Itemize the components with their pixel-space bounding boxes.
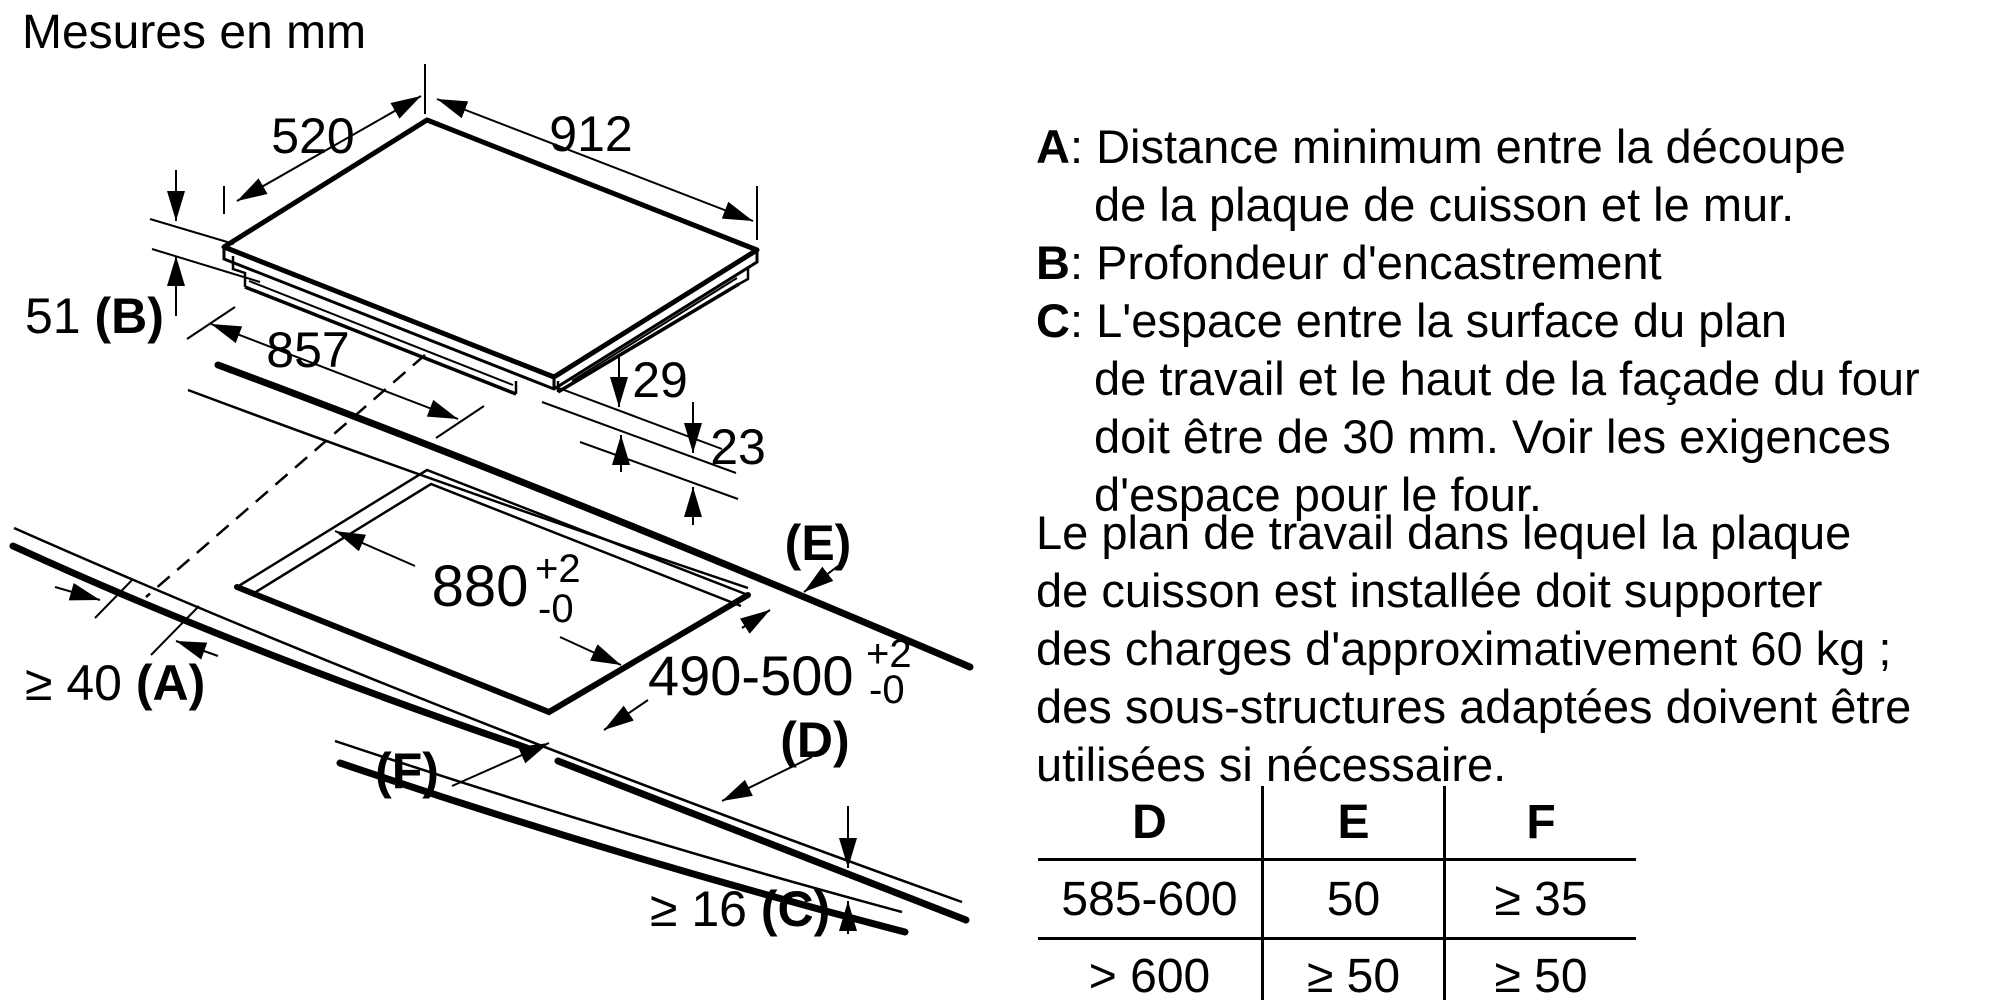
legend-text-a1: Distance minimum entre la découpe [1096,120,1846,173]
paragraph-line: des sous-structures adaptées doivent êtr… [1036,678,1911,736]
dim-490-tol-minus: -0 [869,668,905,712]
legend-letter-c: C [1036,294,1070,347]
clearance-table: D E F 585-600 50 ≥ 35 > 600 ≥ 50 ≥ 50 [1038,786,1636,1000]
dim-857-label: 857 [266,322,349,378]
table-row: > 600 ≥ 50 ≥ 50 [1038,939,1636,1000]
dim-490-label: 490-500 [648,644,854,707]
table-cell: 585-600 [1038,860,1263,939]
label-f: (F) [375,743,439,799]
dim-880-tol-plus: +2 [535,547,581,591]
legend-letter-b: B [1036,236,1070,289]
ext-line-b-upper [150,219,234,244]
dim-490-line-right [742,610,770,628]
dim-a-arrow-left [55,587,100,600]
dim-880-tol-minus: -0 [538,587,574,631]
tick-857-right [436,406,484,438]
spec-paragraph: Le plan de travail dans lequel la plaque… [1036,504,1911,794]
paragraph-line: des charges d'approximativement 60 kg ; [1036,620,1911,678]
dim-29-label: 29 [632,352,688,408]
dim-23-label: 23 [710,419,766,475]
label-e: (E) [785,515,852,571]
table-header-f: F [1445,786,1637,860]
arrow-f [452,743,549,786]
legend-text-c1: L'espace entre la surface du plan [1096,294,1787,347]
dim-520-label: 520 [271,108,354,164]
legend-text-c2: de travail et le haut de la façade du fo… [1036,350,1920,408]
burner-box-step-left [233,256,245,287]
table-header-e: E [1263,786,1445,860]
table-cell: > 600 [1038,939,1263,1000]
dim-a-arrow-right [176,641,218,656]
table-cell: ≥ 50 [1445,939,1637,1000]
dim-880-label: 880 [432,554,529,619]
legend-letter-a: A [1036,120,1070,173]
page-title: Mesures en mm [22,6,366,59]
tick-857-left [187,307,235,339]
paragraph-line: Le plan de travail dans lequel la plaque [1036,504,1911,562]
table-cell: ≥ 50 [1263,939,1445,1000]
page: Mesures en mm [0,0,2000,1000]
table-cell: 50 [1263,860,1445,939]
legend-text-b1: Profondeur d'encastrement [1096,236,1661,289]
table-row: 585-600 50 ≥ 35 [1038,860,1636,939]
dimension-lines [55,96,848,934]
legend-row-b: B: Profondeur d'encastrement [1036,234,1920,292]
dim-912-label: 912 [549,106,632,162]
table-header-d: D [1038,786,1263,860]
legend-text-a2: de la plaque de cuisson et le mur. [1036,176,1920,234]
legend-text-c3: doit être de 30 mm. Voir les exigences [1036,408,1920,466]
dim-a-label: ≥ 40 (A) [25,655,205,711]
dim-880-line-right [560,637,621,665]
legend-sep-c: : [1070,294,1096,347]
legend-sep-b: : [1070,236,1096,289]
legend-sep-a: : [1070,120,1096,173]
legend-row-c: C: L'espace entre la surface du plan [1036,292,1920,350]
legend: A: Distance minimum entre la découpe de … [1036,118,1920,524]
label-d: (D) [780,712,849,768]
dimension-labels: 520 912 857 51 (B) 29 23 880 +2 -0 490-5… [25,106,912,937]
dim-c-label: ≥ 16 (C) [650,881,830,937]
dim-b-label: 51 (B) [25,288,164,344]
table-cell: ≥ 35 [1445,860,1637,939]
paragraph-line: de cuisson est installée doit supporter [1036,562,1911,620]
dim-490-line-left [604,700,648,730]
legend-row-a: A: Distance minimum entre la découpe [1036,118,1920,176]
